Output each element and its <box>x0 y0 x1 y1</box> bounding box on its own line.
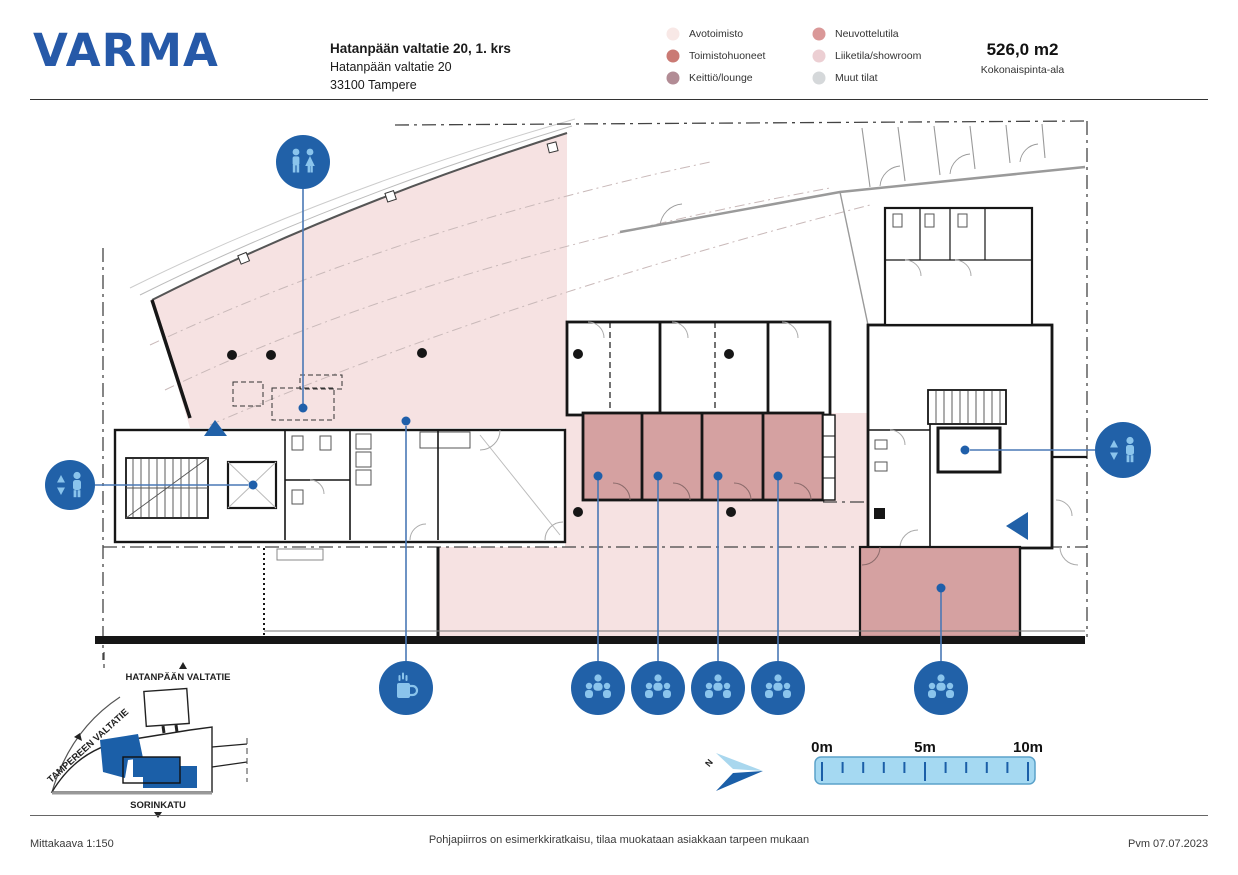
legend-label: Muut tilat <box>835 72 878 84</box>
coffee-icon <box>379 661 433 715</box>
legend-item-muut-tilat: Muut tilat <box>812 70 921 85</box>
scale-label-5: 5m <box>914 739 936 756</box>
legend-item-keittio: Keittiö/lounge <box>666 70 765 85</box>
legend-label: Liiketila/showroom <box>835 50 921 62</box>
legend-item-liiketila: Liiketila/showroom <box>812 48 921 63</box>
legend-swatch <box>666 49 680 63</box>
varma-logo: VARMA <box>33 24 219 77</box>
legend-label: Keittiö/lounge <box>689 72 753 84</box>
floor-plan: HATANPÄÄN VALTATIE TAMPEREEN VALTATIE SO… <box>0 0 1238 875</box>
title-block: Hatanpään valtatie 20, 1. krs Hatanpään … <box>330 40 511 94</box>
meeting-icon <box>571 661 625 715</box>
legend-swatch <box>812 71 826 85</box>
floorplan-page: HATANPÄÄN VALTATIE TAMPEREEN VALTATIE SO… <box>0 0 1238 875</box>
meeting-icon <box>914 661 968 715</box>
scale-label-10: 10m <box>1013 739 1043 756</box>
north-label: N <box>703 757 715 768</box>
wc-icon <box>276 135 330 189</box>
footer-divider <box>30 815 1208 816</box>
address-line2: 33100 Tampere <box>330 76 511 94</box>
date-text: Pvm 07.07.2023 <box>1128 838 1208 850</box>
inset-map: HATANPÄÄN VALTATIE TAMPEREEN VALTATIE SO… <box>46 652 247 818</box>
meeting-icon <box>751 661 805 715</box>
service-block-right <box>868 208 1087 565</box>
legend-item-neuvottelutila: Neuvottelutila <box>812 26 921 41</box>
disclaimer-text: Pohjapiirros on esimerkkiratkaisu, tilaa… <box>0 834 1238 846</box>
meeting-icon <box>691 661 745 715</box>
elevator-icon <box>45 460 95 510</box>
legend-label: Neuvottelutila <box>835 28 899 40</box>
street-label-top: HATANPÄÄN VALTATIE <box>125 672 230 683</box>
street-label-bottom: SORINKATU <box>130 800 186 811</box>
legend-swatch <box>812 49 826 63</box>
elevator-icon <box>1095 422 1151 478</box>
legend-swatch <box>666 71 680 85</box>
legend-column-2: Neuvottelutila Liiketila/showroom Muut t… <box>812 26 921 92</box>
legend-item-avotoimisto: Avotoimisto <box>666 26 765 41</box>
total-area-value: 526,0 m2 <box>945 40 1100 60</box>
entrance-block <box>115 430 565 542</box>
header-divider <box>30 99 1208 100</box>
legend-swatch <box>666 27 680 41</box>
legend-item-toimistohuoneet: Toimistohuoneet <box>666 48 765 63</box>
meeting-icon <box>631 661 685 715</box>
legend-column-1: Avotoimisto Toimistohuoneet Keittiö/loun… <box>666 26 765 92</box>
legend-label: Toimistohuoneet <box>689 50 765 62</box>
total-area-block: 526,0 m2 Kokonaispinta-ala <box>945 40 1100 76</box>
legend-label: Avotoimisto <box>689 28 743 40</box>
scale-label-0: 0m <box>811 739 833 756</box>
north-arrow-icon: N <box>703 753 763 791</box>
address-line1: Hatanpään valtatie 20 <box>330 58 511 76</box>
scale-bar: 0m 5m 10m <box>811 739 1043 784</box>
meeting-rooms <box>583 413 835 500</box>
page-title: Hatanpään valtatie 20, 1. krs <box>330 40 511 58</box>
total-area-label: Kokonaispinta-ala <box>945 64 1100 76</box>
legend-swatch <box>812 27 826 41</box>
office-room-band <box>567 322 830 415</box>
